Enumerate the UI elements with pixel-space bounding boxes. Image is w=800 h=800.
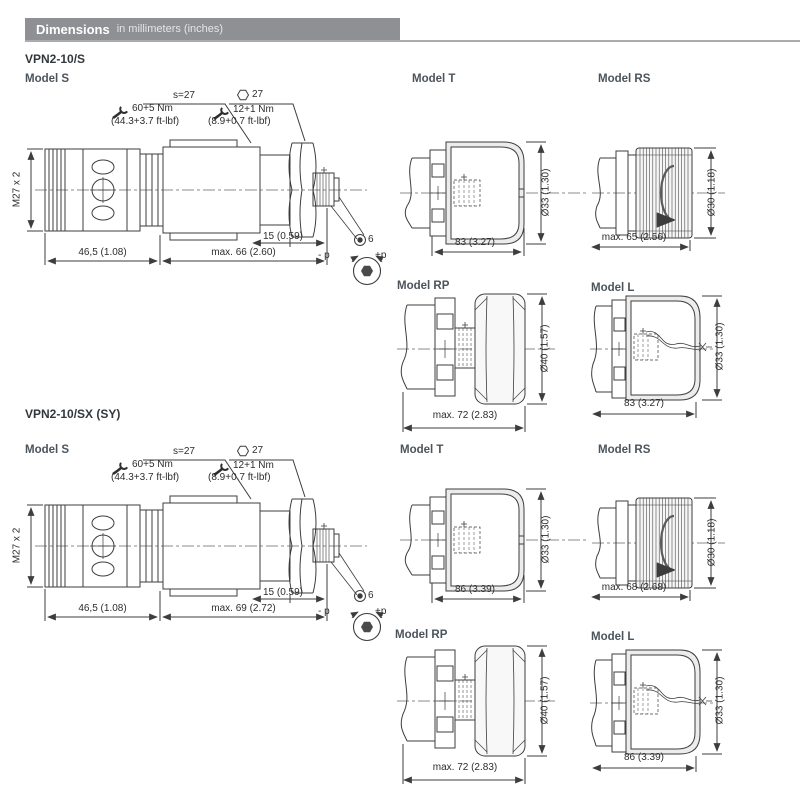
dim-cartridge-length: 46,5 (1.08) [45,603,160,614]
section-header-bar: Dimensions in millimeters (inches) [25,18,400,40]
dim-length: 86 (3.39) [600,752,688,763]
dim-diameter: Ø33 (1.30) [541,497,552,583]
dim-screw-length: 15 (0.59) [243,231,323,242]
minus-p-label: - p [318,250,330,261]
series-title: VPN2-10/S [25,52,85,66]
dim-length: max. 72 (2.83) [413,762,517,773]
dim-diameter: Ø33 (1.30) [715,304,726,390]
dim-diameter: Ø30 (1.18) [707,500,718,586]
torque1-label: 60+5 Nm [132,459,173,470]
model-t-drawing: 86 (3.39) Ø33 (1.30) [398,475,593,610]
torque2-ftlbf-label: (8.9+0.7 ft-lbf) [208,116,271,127]
plus-p-label: +p [375,250,386,261]
wrench-size-label: s=27 [143,446,225,457]
dim-diameter: Ø40 (1.57) [540,306,551,392]
dim-length: max. 72 (2.83) [413,410,517,421]
model-rp-drawing: max. 72 (2.83) Ø40 (1.57) [395,640,595,788]
page-subtitle: in millimeters (inches) [117,23,223,35]
model-s-label: Model S [25,73,69,85]
torque2-label: 12+1 Nm [233,460,274,471]
dim-total-length: max. 66 (2.60) [162,247,325,258]
model-rs-label: Model RS [598,444,650,456]
torque2-label: 12+1 Nm [233,104,274,115]
datasheet-page: Dimensions in millimeters (inches) VPN2-… [0,0,800,800]
plus-p-label: +p [375,606,386,617]
minus-p-label: - p [318,606,330,617]
wrench-size-label: s=27 [143,90,225,101]
model-l-drawing: 86 (3.39) Ø33 (1.30) [588,642,800,780]
dim-diameter: Ø33 (1.30) [715,658,726,744]
header-rule [25,40,800,42]
model-rs-drawing: max. 68 (2.68) Ø30 (1.18) [590,483,800,608]
model-t-label: Model T [400,444,443,456]
hex-size-label: 27 [252,445,263,456]
torque1-ftlbf-label: (44.3+3.7 ft-lbf) [111,116,179,127]
dim-length: 86 (3.39) [426,584,524,595]
dim-total-length: max. 69 (2.72) [162,603,325,614]
page-title: Dimensions [36,22,110,37]
model-l-drawing: 83 (3.27) Ø33 (1.30) [588,288,800,426]
dim-diameter: Ø30 (1.18) [707,150,718,236]
torque1-label: 60+5 Nm [132,103,173,114]
dim-length: max. 68 (2.68) [590,582,678,593]
dim-screw-length: 15 (0.59) [243,587,323,598]
thread-label: M27 x 2 [12,155,23,225]
valve-line-art [15,441,390,646]
model-rs-drawing: max. 65 (2.56) Ø30 (1.18) [590,133,800,258]
torque1-ftlbf-label: (44.3+3.7 ft-lbf) [111,472,179,483]
dim-diameter: Ø33 (1.30) [541,150,552,236]
socket-size-label: 6 [368,590,374,601]
hex-size-label: 27 [252,89,263,100]
dim-length: 83 (3.27) [600,398,688,409]
dim-length: 83 (3.27) [426,237,524,248]
valve-line-art [15,85,390,290]
model-s-drawing: s=27 60+5 Nm (44.3+3.7 ft-lbf) 27 12+1 N… [15,441,390,646]
dim-diameter: Ø40 (1.57) [540,658,551,744]
dim-length: max. 65 (2.56) [590,232,678,243]
thread-label: M27 x 2 [12,511,23,581]
socket-size-label: 6 [368,234,374,245]
dim-cartridge-length: 46,5 (1.08) [45,247,160,258]
series-title: VPN2-10/SX (SY) [25,407,120,421]
torque2-ftlbf-label: (8.9+0.7 ft-lbf) [208,472,271,483]
model-rp-drawing: max. 72 (2.83) Ø40 (1.57) [395,288,595,436]
model-t-label: Model T [412,73,455,85]
model-rs-label: Model RS [598,73,650,85]
model-t-drawing: 83 (3.27) Ø33 (1.30) [398,128,593,263]
model-s-drawing: s=27 60+5 Nm (44.3+3.7 ft-lbf) 27 12+1 N… [15,85,390,290]
